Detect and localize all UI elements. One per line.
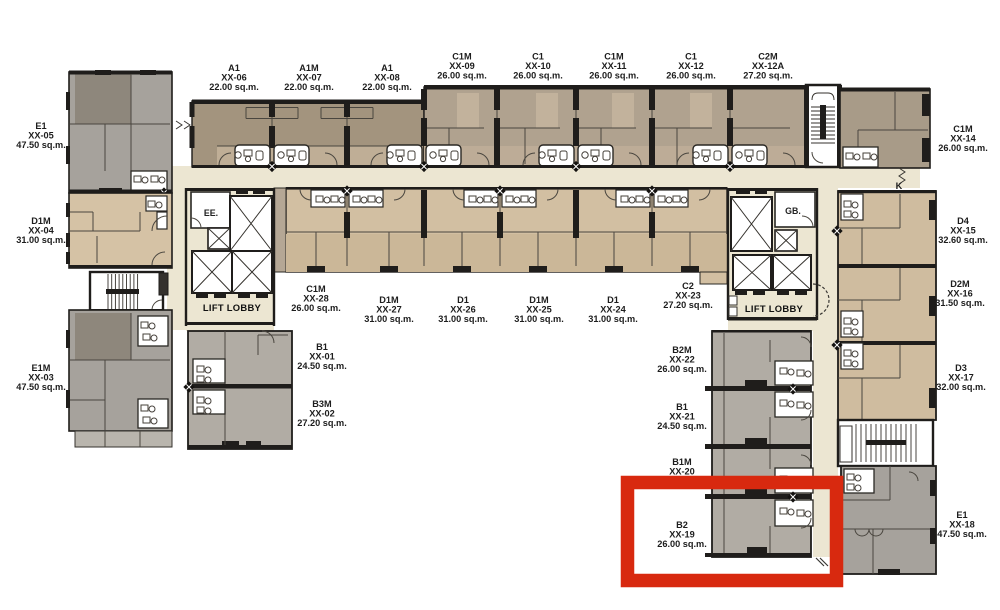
- svg-text:C1: C1: [685, 52, 697, 62]
- svg-text:XX-27: XX-27: [376, 305, 402, 315]
- svg-text:B1: B1: [676, 402, 688, 412]
- svg-text:D3: D3: [955, 363, 967, 373]
- svg-text:XX-04: XX-04: [28, 226, 54, 236]
- svg-text:XX-26: XX-26: [450, 305, 476, 315]
- svg-text:31.50 sq.m.: 31.50 sq.m.: [935, 298, 985, 308]
- svg-text:D1M: D1M: [529, 295, 549, 305]
- svg-text:31.00 sq.m.: 31.00 sq.m.: [16, 235, 66, 245]
- svg-text:XX-07: XX-07: [296, 73, 322, 83]
- svg-text:A1: A1: [381, 63, 393, 73]
- svg-text:C2M: C2M: [758, 52, 778, 62]
- svg-text:26.00 sq.m.: 26.00 sq.m.: [666, 71, 716, 81]
- svg-text:26.00 sq.m.: 26.00 sq.m.: [657, 539, 707, 549]
- svg-text:26.00 sq.m.: 26.00 sq.m.: [589, 71, 639, 81]
- svg-text:D1M: D1M: [31, 216, 51, 226]
- svg-text:LIFT LOBBY: LIFT LOBBY: [203, 302, 262, 313]
- svg-text:24.50 sq.m.: 24.50 sq.m.: [657, 421, 707, 431]
- svg-text:XX-14: XX-14: [950, 134, 976, 144]
- svg-text:32.60 sq.m.: 32.60 sq.m.: [938, 235, 988, 245]
- svg-text:26.00 sq.m.: 26.00 sq.m.: [437, 71, 487, 81]
- svg-text:D1: D1: [607, 295, 619, 305]
- svg-text:27.20 sq.m.: 27.20 sq.m.: [297, 418, 347, 428]
- svg-text:B1M: B1M: [672, 457, 692, 467]
- svg-text:22.00 sq.m.: 22.00 sq.m.: [284, 82, 334, 92]
- svg-text:XX-12: XX-12: [678, 61, 704, 71]
- svg-text:K: K: [896, 181, 903, 191]
- svg-text:XX-18: XX-18: [949, 520, 975, 530]
- svg-text:XX-21: XX-21: [669, 412, 695, 422]
- svg-text:C1M: C1M: [452, 52, 472, 62]
- svg-text:LIFT LOBBY: LIFT LOBBY: [745, 303, 804, 314]
- svg-text:XX-01: XX-01: [309, 352, 335, 362]
- svg-text:E1M: E1M: [32, 363, 51, 373]
- svg-text:A1M: A1M: [299, 63, 319, 73]
- svg-text:26.00 sq.m.: 26.00 sq.m.: [513, 71, 563, 81]
- svg-text:22.00 sq.m.: 22.00 sq.m.: [362, 82, 412, 92]
- svg-text:XX-20: XX-20: [669, 467, 695, 477]
- svg-text:XX-08: XX-08: [374, 73, 400, 83]
- svg-text:D1M: D1M: [379, 295, 399, 305]
- svg-text:24.50 sq.m.: 24.50 sq.m.: [297, 361, 347, 371]
- svg-text:XX-09: XX-09: [449, 61, 475, 71]
- svg-text:B3M: B3M: [312, 399, 332, 409]
- svg-text:XX-03: XX-03: [28, 373, 54, 383]
- svg-text:E1: E1: [35, 121, 46, 131]
- svg-text:B2M: B2M: [672, 345, 692, 355]
- svg-text:27.20 sq.m.: 27.20 sq.m.: [743, 71, 793, 81]
- svg-text:B2: B2: [676, 520, 688, 530]
- svg-text:XX-28: XX-28: [303, 294, 329, 304]
- svg-text:XX-10: XX-10: [525, 61, 551, 71]
- svg-text:26.00 sq.m.: 26.00 sq.m.: [938, 143, 988, 153]
- svg-text:31.00 sq.m.: 31.00 sq.m.: [438, 314, 488, 324]
- svg-text:31.00 sq.m.: 31.00 sq.m.: [588, 314, 638, 324]
- svg-text:47.50 sq.m.: 47.50 sq.m.: [16, 140, 66, 150]
- svg-text:E1: E1: [956, 510, 967, 520]
- svg-text:31.00 sq.m.: 31.00 sq.m.: [514, 314, 564, 324]
- svg-text:EE.: EE.: [204, 208, 218, 218]
- svg-text:XX-23: XX-23: [675, 291, 701, 301]
- svg-text:D2M: D2M: [950, 279, 970, 289]
- svg-text:XX-12A: XX-12A: [752, 61, 785, 71]
- svg-text:32.00 sq.m.: 32.00 sq.m.: [936, 382, 986, 392]
- svg-text:C2: C2: [682, 281, 694, 291]
- svg-text:47.50 sq.m.: 47.50 sq.m.: [16, 382, 66, 392]
- svg-text:C1: C1: [532, 52, 544, 62]
- svg-text:A1: A1: [228, 63, 240, 73]
- svg-text:27.20 sq.m.: 27.20 sq.m.: [663, 300, 713, 310]
- svg-text:XX-15: XX-15: [950, 226, 976, 236]
- svg-text:C1M: C1M: [604, 52, 624, 62]
- svg-text:XX-11: XX-11: [601, 61, 626, 71]
- svg-text:26.00 sq.m.: 26.00 sq.m.: [657, 364, 707, 374]
- svg-text:B1: B1: [316, 342, 328, 352]
- svg-text:47.50 sq.m.: 47.50 sq.m.: [937, 529, 987, 539]
- svg-text:XX-06: XX-06: [221, 73, 247, 83]
- svg-text:XX-24: XX-24: [600, 305, 626, 315]
- svg-text:26.00 sq.m.: 26.00 sq.m.: [291, 303, 341, 313]
- svg-text:D1: D1: [457, 295, 469, 305]
- svg-text:XX-05: XX-05: [28, 131, 54, 141]
- svg-text:XX-16: XX-16: [947, 289, 973, 299]
- svg-text:D4: D4: [957, 216, 970, 226]
- svg-text:XX-25: XX-25: [526, 305, 552, 315]
- svg-text:C1M: C1M: [306, 284, 326, 294]
- svg-text:XX-02: XX-02: [309, 409, 335, 419]
- svg-text:XX-19: XX-19: [669, 530, 695, 540]
- svg-text:GB.: GB.: [785, 206, 801, 216]
- svg-text:C1M: C1M: [953, 124, 973, 134]
- svg-text:22.00 sq.m.: 22.00 sq.m.: [209, 82, 259, 92]
- svg-text:XX-22: XX-22: [669, 355, 695, 365]
- svg-text:XX-17: XX-17: [948, 373, 974, 383]
- svg-text:31.00 sq.m.: 31.00 sq.m.: [364, 314, 414, 324]
